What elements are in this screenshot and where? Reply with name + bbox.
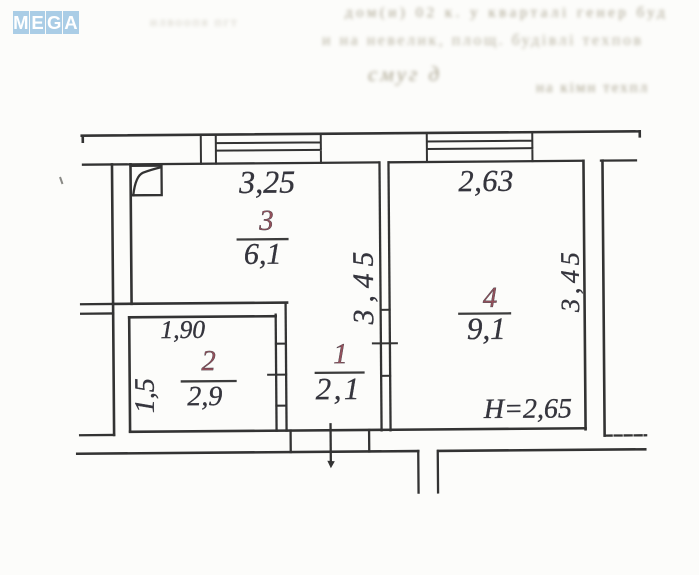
svg-text:3,25: 3,25	[238, 164, 295, 200]
svg-text:9,1: 9,1	[467, 311, 506, 346]
svg-text:3,45: 3,45	[348, 245, 381, 326]
svg-text:1,90: 1,90	[160, 315, 205, 344]
svg-text:1,5: 1,5	[130, 378, 161, 413]
svg-text:2,1: 2,1	[315, 371, 362, 406]
svg-text:6,1: 6,1	[244, 238, 282, 271]
svg-text:3: 3	[258, 205, 274, 237]
svg-text:H=2,65: H=2,65	[483, 393, 572, 425]
svg-text:4: 4	[483, 282, 498, 314]
svg-text:2,63: 2,63	[458, 164, 514, 198]
svg-text:2: 2	[201, 345, 216, 377]
svg-text:2,9: 2,9	[187, 381, 222, 412]
svg-text:1: 1	[333, 338, 348, 370]
svg-text:3,45: 3,45	[555, 248, 586, 314]
